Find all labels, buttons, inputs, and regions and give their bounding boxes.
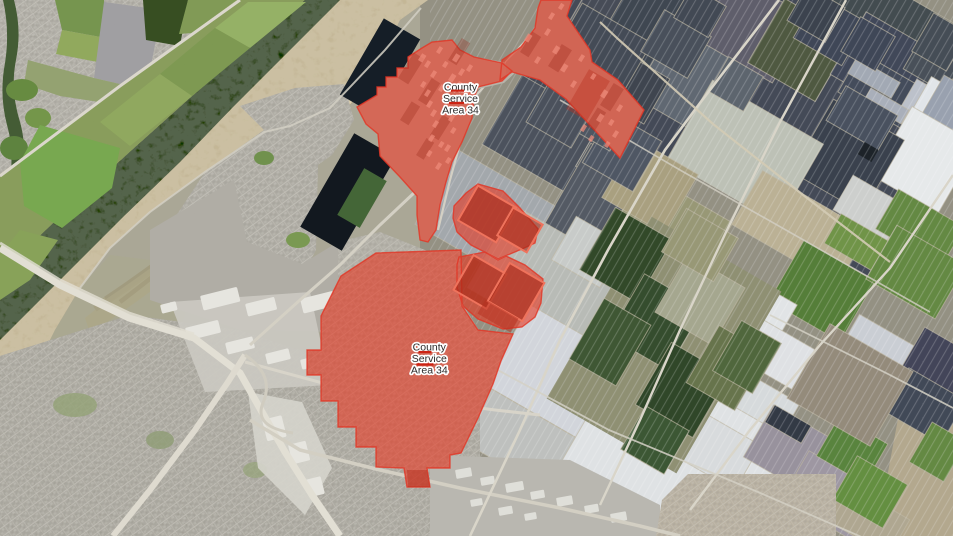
svg-text:CountyServiceArea 34: CountyServiceArea 34 <box>411 342 448 377</box>
svg-text:CountyServiceArea 34: CountyServiceArea 34 <box>442 82 479 117</box>
